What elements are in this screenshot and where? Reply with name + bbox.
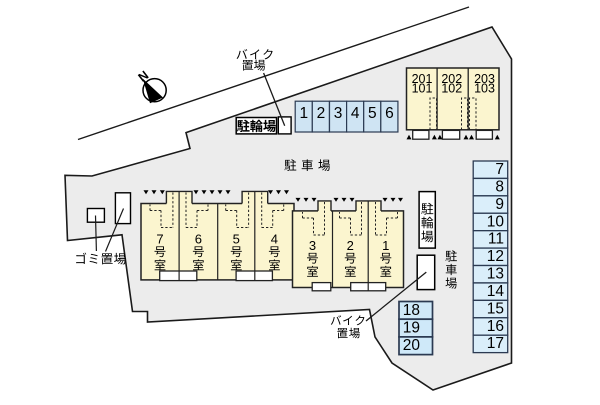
svg-text:17: 17 — [487, 335, 504, 352]
svg-text:18: 18 — [403, 302, 420, 319]
svg-text:16: 16 — [487, 318, 504, 335]
svg-text:10: 10 — [487, 213, 505, 230]
svg-text:3: 3 — [334, 105, 343, 122]
svg-text:6: 6 — [195, 231, 202, 246]
svg-text:9: 9 — [495, 196, 504, 213]
svg-text:20: 20 — [403, 337, 421, 354]
svg-text:7: 7 — [495, 161, 504, 178]
svg-text:N: N — [136, 68, 152, 85]
svg-text:13: 13 — [487, 266, 504, 283]
svg-text:6: 6 — [385, 105, 394, 122]
svg-text:19: 19 — [403, 320, 420, 337]
svg-text:1: 1 — [382, 238, 389, 253]
svg-text:11: 11 — [488, 231, 504, 248]
svg-text:15: 15 — [487, 300, 504, 317]
svg-text:1: 1 — [299, 105, 308, 122]
svg-text:4: 4 — [271, 231, 278, 246]
svg-text:5: 5 — [368, 105, 377, 122]
svg-text:12: 12 — [487, 248, 504, 265]
svg-text:14: 14 — [487, 283, 505, 300]
svg-text:8: 8 — [495, 178, 504, 195]
svg-text:7: 7 — [156, 231, 163, 246]
svg-text:3: 3 — [309, 238, 316, 253]
svg-text:102: 102 — [441, 82, 462, 96]
svg-text:103: 103 — [474, 82, 495, 96]
svg-text:2: 2 — [347, 238, 354, 253]
svg-text:101: 101 — [412, 82, 433, 96]
svg-text:2: 2 — [317, 105, 326, 122]
svg-text:4: 4 — [351, 105, 360, 122]
svg-text:5: 5 — [233, 231, 240, 246]
